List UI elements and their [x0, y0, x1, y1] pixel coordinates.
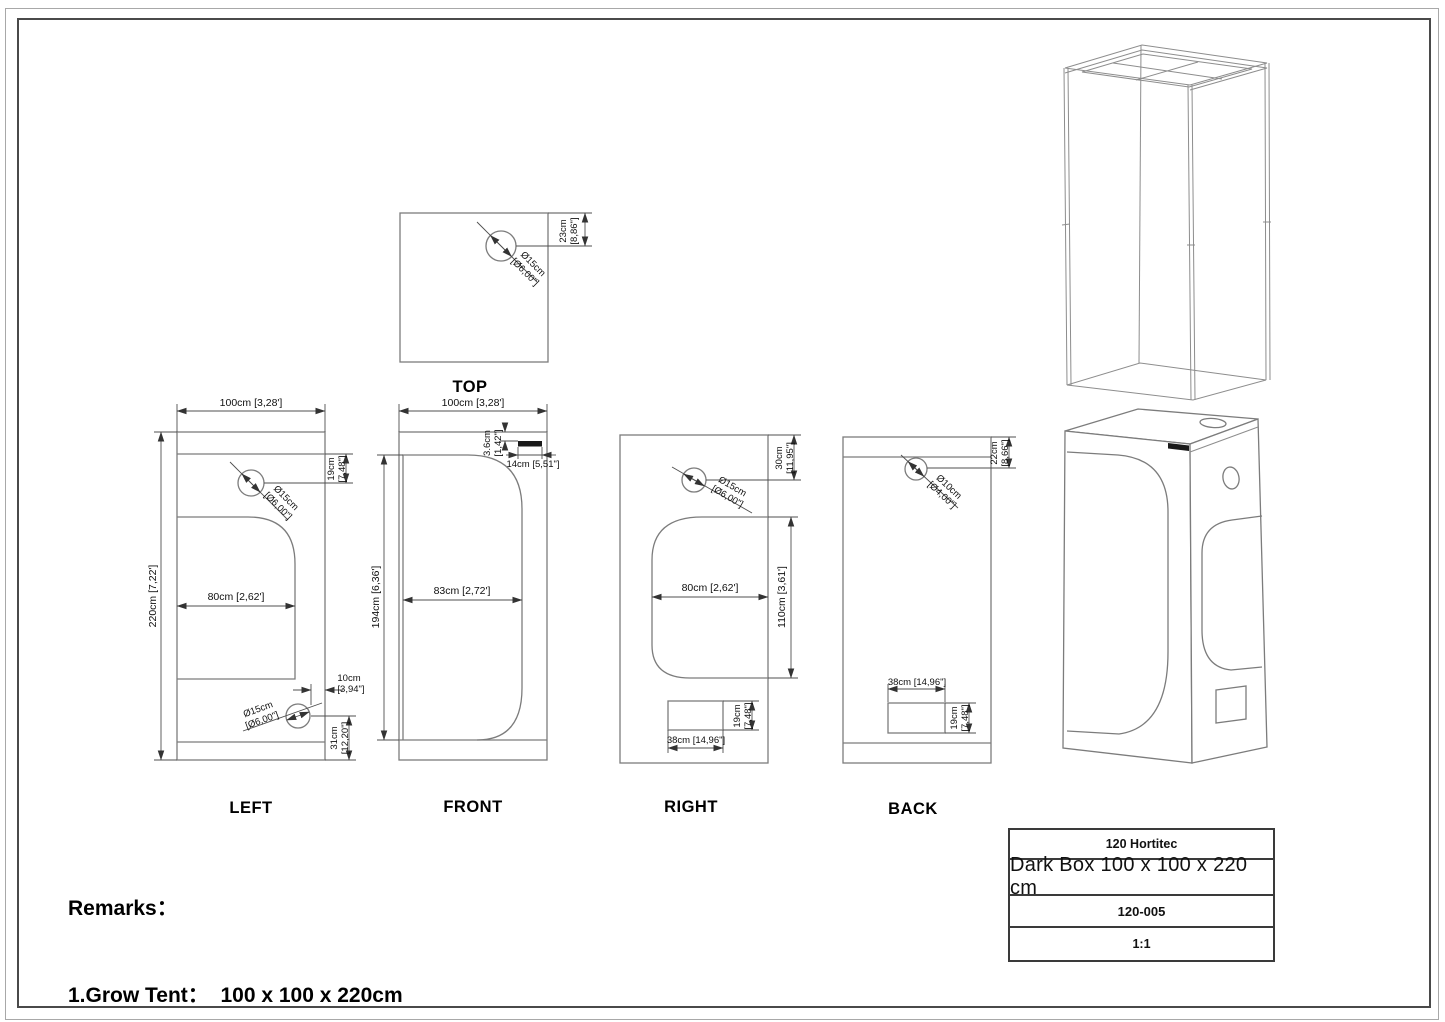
front-logo-patch — [518, 441, 542, 447]
dim-right-vent-width: 38cm [14,96"] — [667, 735, 725, 746]
view-label-right: RIGHT — [664, 798, 718, 816]
dim-left-port-bottom-offset-cm: 10cm — [337, 673, 360, 684]
front-door-outline — [403, 455, 522, 740]
dim-left-port-top-offset-in: [7,48"] — [337, 455, 348, 482]
view-left: 100cm [3,28'] 220cm [7,22'] 19cm [7,48"]… — [147, 397, 365, 817]
view-label-top: TOP — [452, 378, 487, 396]
title-block-product-name: Dark Box 100 x 100 x 220 cm — [1010, 858, 1273, 894]
view-front: 100cm [3,28'] 194cm [6,36'] 83cm [2,72']… — [370, 397, 560, 816]
frame-roof-crossbars — [1113, 62, 1222, 80]
right-vent-mesh — [668, 701, 723, 730]
dim-back-vent-width: 38cm [14,96"] — [888, 677, 946, 688]
view-right: Ø15cm [Ø6,00"] 30cm [11,95"] 80cm [2,62'… — [620, 435, 801, 816]
leader-arrow — [694, 480, 704, 486]
dim-top-port-offset-cm: 23cm — [558, 219, 569, 242]
dim-back-port-offset-cm: 22cm — [989, 441, 1000, 464]
dim-back-vent-height-in: [7,48"] — [960, 704, 971, 731]
tent-3d — [1063, 409, 1267, 763]
leader-arrow — [242, 474, 251, 483]
remarks-title: Remarks： — [68, 894, 775, 923]
dim-right-port-offset-in: [11,95"] — [785, 442, 796, 474]
dim-right-window-height: 110cm [3,61'] — [776, 566, 788, 628]
view-label-front: FRONT — [443, 798, 502, 816]
dim-right-window-width: 80cm [2,62'] — [682, 582, 739, 594]
leader-arrow — [908, 462, 916, 470]
top-outline — [400, 213, 548, 362]
ext-line — [518, 447, 542, 459]
ext-line — [516, 213, 592, 246]
leader-arrow — [287, 716, 298, 720]
dim-right-port-offset-cm: 30cm — [774, 446, 785, 469]
right-window-outline — [652, 517, 768, 678]
frame-top-rim — [1065, 45, 1267, 85]
remarks-block: Remarks： 1.Grow Tent： 100 x 100 x 220cm … — [68, 836, 775, 1022]
dim-right-vent-height-in: [7,48"] — [743, 702, 754, 729]
dim-front-logo-width: 14cm [5,51"] — [506, 459, 559, 470]
leader-arrow — [501, 246, 512, 257]
remarks-line-grow-tent: 1.Grow Tent： 100 x 100 x 220cm — [68, 981, 775, 1010]
view-top: Ø15cm [Ø6,00"] 23cm [8,86"] TOP — [400, 213, 592, 396]
frame-pole-front — [1188, 85, 1195, 400]
title-block-scale: 1:1 — [1010, 926, 1273, 960]
view-back: Ø10cm [Ø4,00"] 22cm [8,66"] 38cm [14,96"… — [843, 437, 1016, 818]
dim-left-port-bottom-height-in: [12,20"] — [340, 722, 351, 754]
view-label-left: LEFT — [229, 799, 272, 817]
dim-front-door-width: 83cm [2,72'] — [434, 585, 491, 597]
frame-pole-joints — [1062, 222, 1271, 245]
leader-arrow — [684, 474, 694, 480]
dim-left-width: 100cm [3,28'] — [220, 397, 283, 409]
dim-front-logo-offset-in: [1,42"] — [493, 429, 504, 456]
dim-left-port-bottom-height-cm: 31cm — [329, 726, 340, 749]
dim-front-logo-offset-cm: 3.6cm — [482, 430, 493, 456]
frame-pole-back — [1139, 45, 1141, 363]
dim-left-port-top-offset-cm: 19cm — [326, 457, 337, 480]
back-seam-lines — [843, 457, 991, 743]
back-vent-mesh — [888, 703, 945, 733]
dim-front-width: 100cm [3,28'] — [442, 397, 505, 409]
dim-top-port-offset-in: [8,86"] — [569, 217, 580, 244]
dim-back-port-offset-in: [8,66"] — [1000, 439, 1011, 466]
dim-back-vent-height-cm: 19cm — [949, 706, 960, 729]
drawing-sheet: Ø15cm [Ø6,00"] 23cm [8,86"] TOP 100cm [3… — [0, 0, 1445, 1022]
dim-right-vent-height-cm: 19cm — [732, 704, 743, 727]
frame-3d — [1062, 45, 1271, 400]
dim-left-port-bottom-offset-in: [3,94"] — [337, 684, 364, 695]
tent-front-face — [1063, 431, 1192, 763]
leader-arrow — [490, 235, 501, 246]
leader-arrow — [298, 712, 309, 716]
view-label-back: BACK — [888, 800, 938, 818]
title-block: 120 Hortitec Dark Box 100 x 100 x 220 cm… — [1008, 828, 1275, 962]
dim-left-height: 220cm [7,22'] — [147, 565, 159, 628]
leader-arrow — [916, 469, 924, 477]
leader-arrow — [251, 483, 260, 492]
dim-left-door-width: 80cm [2,62'] — [208, 591, 265, 603]
dim-front-door-height: 194cm [6,36'] — [370, 566, 382, 629]
frame-pole-left — [1064, 68, 1071, 385]
frame-bottom-rim — [1067, 363, 1266, 400]
